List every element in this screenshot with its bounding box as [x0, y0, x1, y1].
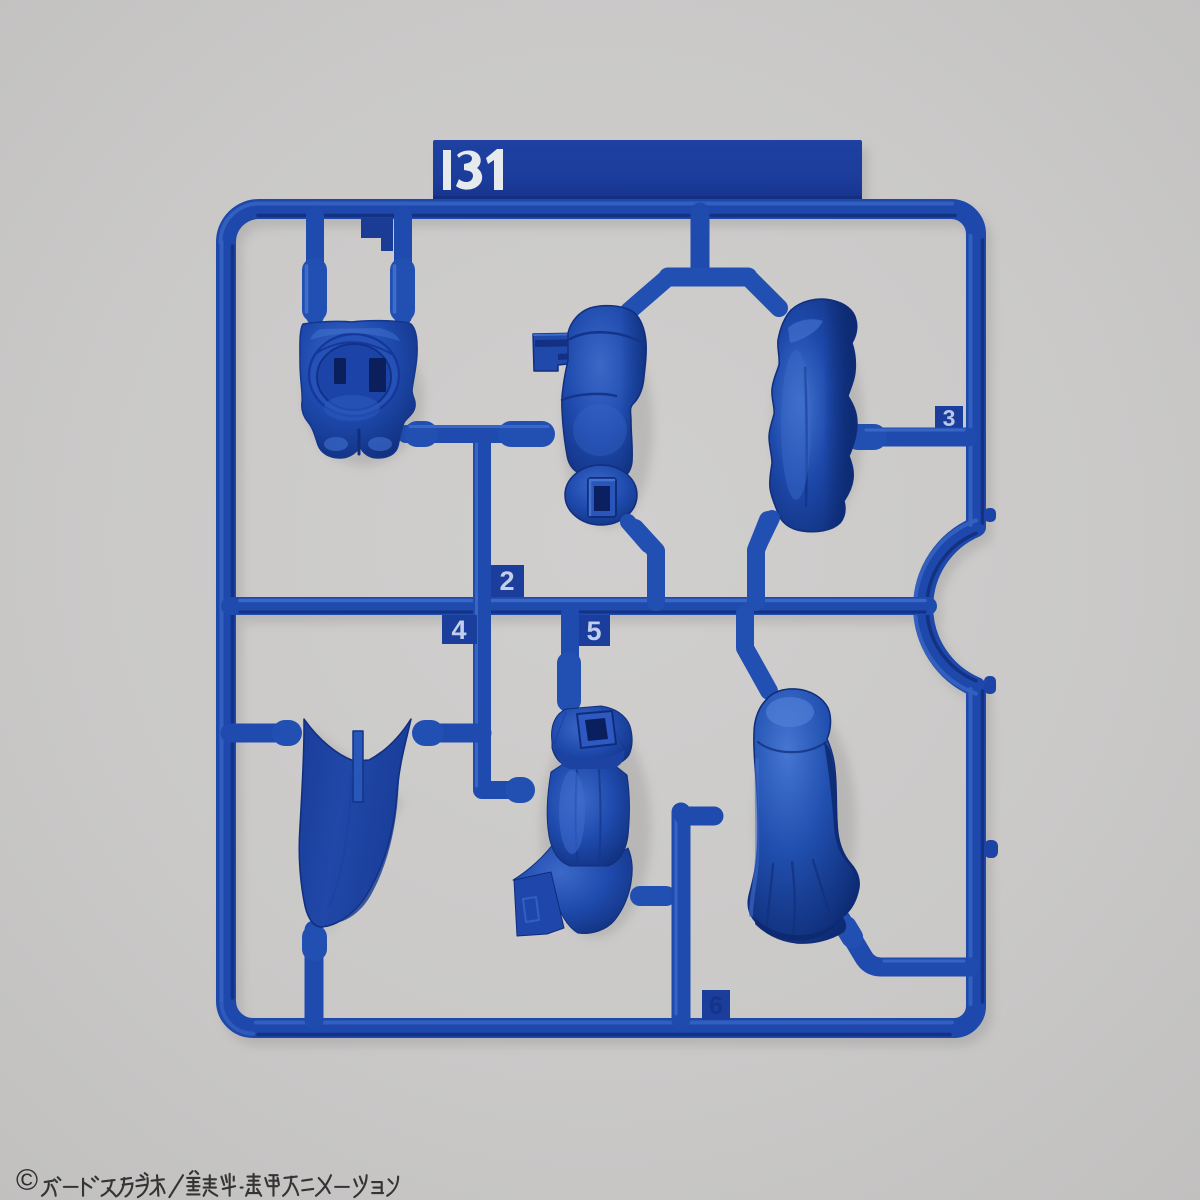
- svg-text:6: 6: [709, 992, 723, 1020]
- svg-text:5: 5: [586, 616, 601, 646]
- svg-text:©: ©: [16, 1164, 38, 1197]
- svg-text:3: 3: [943, 405, 956, 431]
- svg-text:4: 4: [451, 615, 466, 645]
- svg-text:2: 2: [499, 566, 514, 596]
